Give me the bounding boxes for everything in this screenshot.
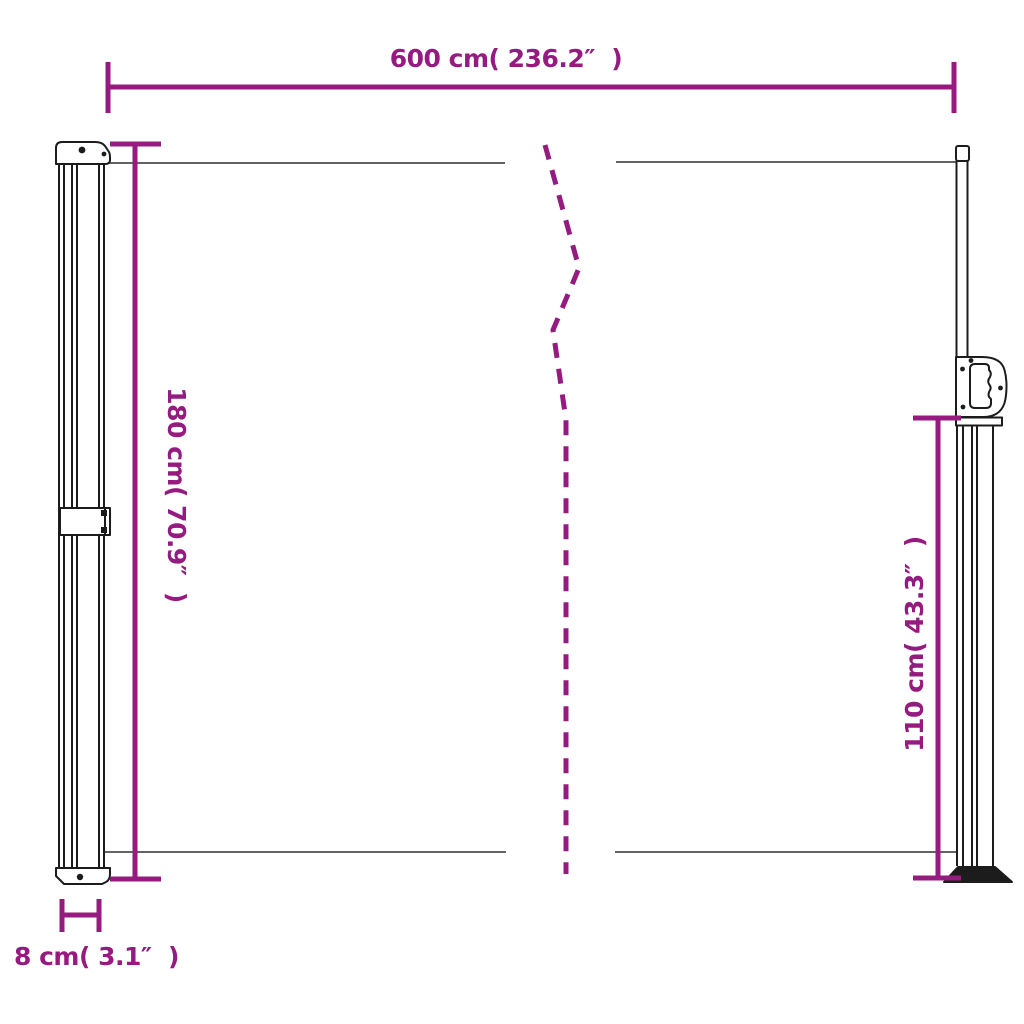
dimension-left-height-180cm	[110, 144, 161, 879]
screw-dot	[960, 367, 965, 372]
screw-dot	[961, 405, 966, 410]
dimension-depth-8cm	[62, 899, 99, 932]
screw-dot	[998, 386, 1003, 391]
dimension-label-left-height: 180 cm( 70.9″ )	[160, 365, 192, 625]
left-cassette-post	[56, 142, 110, 884]
awning-fabric-edges	[104, 162, 956, 852]
dimension-label-depth: 8 cm( 3.1″ )	[14, 941, 179, 973]
pole-top-cap	[956, 146, 969, 161]
fabric-break-line	[545, 145, 579, 874]
pole-collar	[956, 418, 1002, 426]
handle-grip-cutout	[970, 364, 991, 408]
screw-dot	[101, 510, 107, 516]
dimension-lines	[62, 62, 961, 932]
awning-line-drawing	[0, 0, 1024, 1024]
dimension-label-right-height: 110 cm( 43.3″ )	[899, 514, 931, 774]
dimension-label-width: 600 cm( 236.2″ )	[306, 43, 706, 75]
screw-dot	[969, 358, 974, 363]
right-pull-pole	[944, 146, 1012, 882]
screw-dot	[77, 874, 83, 880]
screw-dot	[79, 147, 86, 154]
diagram-canvas: 600 cm( 236.2″ ) 180 cm( 70.9″ ) 110 cm(…	[0, 0, 1024, 1024]
screw-dot	[101, 527, 107, 533]
screw-dot	[102, 152, 107, 157]
